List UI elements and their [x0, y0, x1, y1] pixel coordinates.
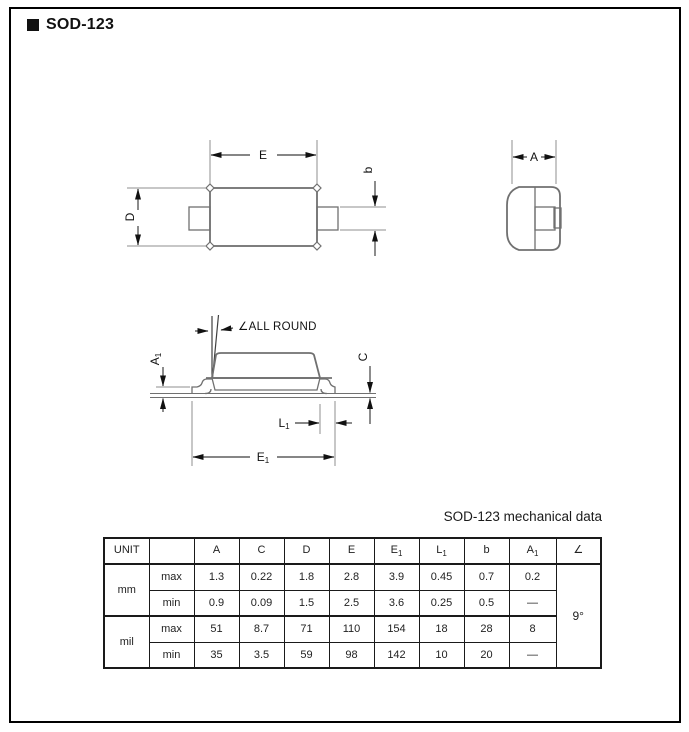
lead-left-profile: [192, 379, 212, 394]
table-header-row: UNIT A C D E E1 L1 b A1 ∠: [104, 538, 601, 564]
package-body-profile-upper: [212, 353, 320, 378]
dim-label-A1: A1: [148, 352, 163, 365]
angle-callout: ∠ALL ROUND: [195, 321, 317, 333]
value-cell: 3.9: [374, 564, 419, 590]
value-cell: 0.2: [509, 564, 556, 590]
value-cell: 0.25: [419, 590, 464, 616]
angle-value-cell: 9°: [556, 564, 601, 668]
value-cell: 0.45: [419, 564, 464, 590]
angle-callout-label: ∠ALL ROUND: [238, 321, 317, 333]
value-cell: 154: [374, 616, 419, 642]
value-cell: 35: [194, 642, 239, 668]
header-cell: E: [329, 538, 374, 564]
value-cell: 110: [329, 616, 374, 642]
limit-cell: max: [149, 564, 194, 590]
value-cell: 1.8: [284, 564, 329, 590]
dim-E: E: [211, 148, 316, 162]
value-cell: 71: [284, 616, 329, 642]
dim-b: b: [361, 166, 375, 256]
package-body-top: [210, 188, 317, 246]
header-cell: UNIT: [104, 538, 149, 564]
value-cell: 0.5: [464, 590, 509, 616]
dim-L1: L1: [278, 416, 352, 431]
datasheet-page: SOD-123 E: [0, 0, 689, 732]
dim-D: D: [123, 189, 138, 245]
value-cell: 0.09: [239, 590, 284, 616]
table-row: mm max 1.3 0.22 1.8 2.8 3.9 0.45 0.7 0.2…: [104, 564, 601, 590]
value-cell: 142: [374, 642, 419, 668]
header-cell: D: [284, 538, 329, 564]
value-cell: 0.22: [239, 564, 284, 590]
table-row: mil max 51 8.7 71 110 154 18 28 8: [104, 616, 601, 642]
corner-chamfer-icon: [313, 242, 321, 250]
value-cell: 18: [419, 616, 464, 642]
corner-chamfer-icon: [206, 184, 214, 192]
dim-label-L1: L1: [278, 416, 290, 431]
header-cell: [149, 538, 194, 564]
value-cell: 51: [194, 616, 239, 642]
value-cell: 1.3: [194, 564, 239, 590]
table-row: min 35 3.5 59 98 142 10 20 —: [104, 642, 601, 668]
header-cell: A: [194, 538, 239, 564]
value-cell: —: [509, 590, 556, 616]
package-outline-drawing: E D: [0, 0, 689, 520]
header-cell: C: [239, 538, 284, 564]
header-cell: A1: [509, 538, 556, 564]
side-view: A: [507, 140, 561, 250]
header-cell: b: [464, 538, 509, 564]
value-cell: —: [509, 642, 556, 668]
unit-cell: mil: [104, 616, 149, 668]
value-cell: 0.9: [194, 590, 239, 616]
dim-A1: A1: [148, 352, 163, 412]
dim-label-D: D: [123, 212, 137, 221]
lead-right-profile: [320, 379, 335, 394]
top-view: E D: [123, 140, 386, 256]
value-cell: 8: [509, 616, 556, 642]
limit-cell: max: [149, 616, 194, 642]
value-cell: 98: [329, 642, 374, 668]
value-cell: 20: [464, 642, 509, 668]
value-cell: 59: [284, 642, 329, 668]
value-cell: 3.6: [374, 590, 419, 616]
limit-cell: min: [149, 642, 194, 668]
lead-cross-section: [535, 207, 555, 230]
corner-chamfer-icon: [313, 184, 321, 192]
value-cell: 3.5: [239, 642, 284, 668]
limit-cell: min: [149, 590, 194, 616]
value-cell: 2.5: [329, 590, 374, 616]
dim-A: A: [513, 150, 555, 164]
dim-label-C: C: [356, 352, 370, 361]
dim-label-E1: E1: [257, 450, 270, 465]
value-cell: 1.5: [284, 590, 329, 616]
value-cell: 28: [464, 616, 509, 642]
value-cell: 8.7: [239, 616, 284, 642]
package-body-side: [507, 187, 560, 250]
profile-view: ∠ALL ROUND A1 C: [148, 315, 376, 466]
package-body-profile-lower: [212, 378, 320, 390]
mechanical-data-table: UNIT A C D E E1 L1 b A1 ∠ mm max 1.3 0.2…: [103, 537, 602, 669]
value-cell: 0.7: [464, 564, 509, 590]
value-cell: 10: [419, 642, 464, 668]
corner-chamfer-icon: [206, 242, 214, 250]
lead-right: [317, 207, 338, 230]
header-cell-angle: ∠: [556, 538, 601, 564]
dim-label-A: A: [530, 150, 538, 164]
dim-label-E: E: [259, 148, 267, 162]
dim-C: C: [356, 352, 370, 424]
table-caption: SOD-123 mechanical data: [302, 509, 602, 524]
table-row: min 0.9 0.09 1.5 2.5 3.6 0.25 0.5 —: [104, 590, 601, 616]
dim-E1: E1: [193, 450, 334, 465]
lead-left: [189, 207, 210, 230]
unit-cell: mm: [104, 564, 149, 616]
dim-label-b: b: [361, 166, 375, 173]
header-cell: L1: [419, 538, 464, 564]
header-cell: E1: [374, 538, 419, 564]
value-cell: 2.8: [329, 564, 374, 590]
